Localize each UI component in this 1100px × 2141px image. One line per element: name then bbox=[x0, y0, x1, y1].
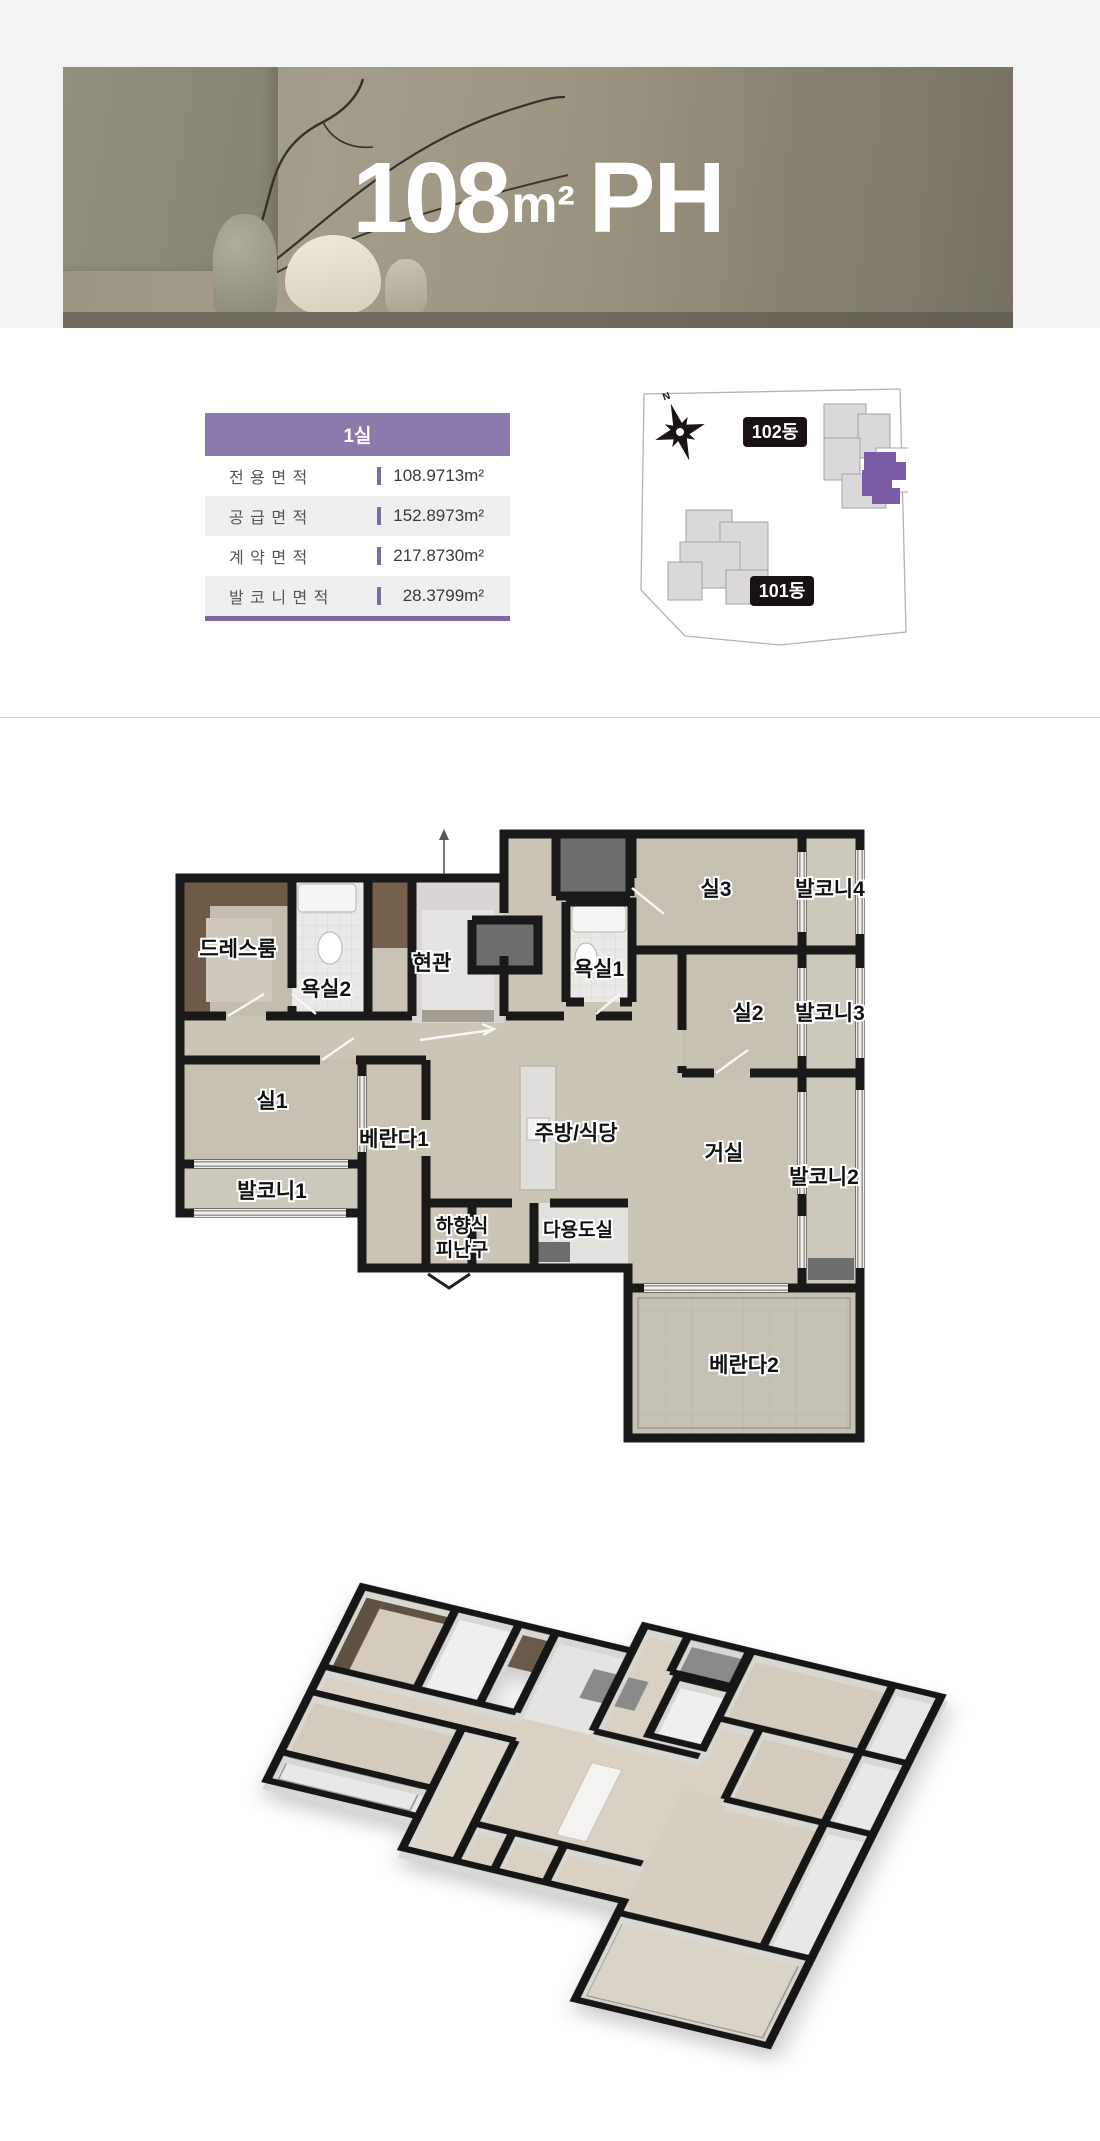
svg-text:102동: 102동 bbox=[752, 422, 799, 442]
hero-banner: 108 m² PH bbox=[63, 67, 1013, 328]
label-balcony2: 발코니2 bbox=[789, 1166, 859, 1189]
escape-hatch-mark bbox=[428, 1274, 470, 1288]
table-row-exclusive-area: 전 용 면 적 108.9713m² bbox=[205, 456, 510, 496]
area-type-suffix: PH bbox=[589, 148, 724, 248]
building-102-label: 102동 bbox=[743, 417, 807, 447]
row-value: 28.3799m² bbox=[389, 586, 510, 606]
table-header: 1실 bbox=[205, 413, 510, 456]
unit-108-ph-page: 108 m² PH 1실 전 용 면 적 108.9713m² 공 급 면 적 … bbox=[0, 0, 1100, 2141]
label-utility: 다용도실 bbox=[543, 1219, 613, 1241]
svg-text:101동: 101동 bbox=[759, 581, 806, 601]
label-escape-2: 피난구 bbox=[436, 1239, 488, 1261]
row-label: 계 약 면 적 bbox=[205, 544, 375, 568]
row-label: 공 급 면 적 bbox=[205, 504, 375, 528]
label-dressroom: 드레스룸 bbox=[199, 938, 276, 961]
purple-separator bbox=[377, 467, 381, 485]
section-divider bbox=[0, 717, 1100, 718]
building-101-label: 101동 bbox=[750, 576, 814, 606]
label-veranda1: 베란다1 bbox=[359, 1128, 429, 1151]
floor-fills bbox=[180, 834, 860, 1438]
table-row-supply-area: 공 급 면 적 152.8973m² bbox=[205, 496, 510, 536]
area-info-table: 1실 전 용 면 적 108.9713m² 공 급 면 적 152.8973m²… bbox=[205, 413, 510, 621]
label-balcony1: 발코니1 bbox=[237, 1180, 307, 1203]
row-value: 152.8973m² bbox=[389, 506, 510, 526]
purple-separator bbox=[377, 547, 381, 565]
row-label: 전 용 면 적 bbox=[205, 464, 375, 488]
label-escape-1: 하향식 bbox=[436, 1215, 488, 1237]
page-title: 108 m² PH bbox=[63, 67, 1013, 328]
label-balcony3: 발코니3 bbox=[795, 1002, 865, 1025]
purple-separator bbox=[377, 587, 381, 605]
table-row-balcony-area: 발 코 니 면 적 28.3799m² bbox=[205, 576, 510, 616]
table-row-contract-area: 계 약 면 적 217.8730m² bbox=[205, 536, 510, 576]
label-bath1: 욕실1 bbox=[574, 958, 625, 981]
row-label: 발 코 니 면 적 bbox=[205, 584, 375, 608]
floor-plan-2d: 드레스룸 욕실2 현관 욕실1 실3 발코니4 실2 발코니3 실1 베란다1 … bbox=[172, 818, 872, 1443]
area-number: 108 bbox=[352, 148, 507, 248]
label-room2: 실2 bbox=[733, 1002, 764, 1025]
label-balcony4: 발코니4 bbox=[795, 878, 865, 901]
row-value: 217.8730m² bbox=[389, 546, 510, 566]
label-veranda2: 베란다2 bbox=[709, 1354, 779, 1377]
label-entrance: 현관 bbox=[413, 952, 452, 975]
floor-plan-3d bbox=[225, 1488, 925, 2113]
purple-separator bbox=[377, 507, 381, 525]
site-location-map: N 102동 101동 bbox=[628, 386, 908, 656]
label-kitchen: 주방/식당 bbox=[534, 1122, 617, 1145]
label-living: 거실 bbox=[705, 1142, 744, 1165]
label-bath2: 욕실2 bbox=[301, 978, 351, 1001]
row-value: 108.9713m² bbox=[389, 466, 510, 486]
entrance-arrow bbox=[439, 829, 449, 874]
area-unit: m² bbox=[511, 179, 575, 231]
label-room1: 실1 bbox=[257, 1090, 288, 1113]
label-room3: 실3 bbox=[701, 878, 732, 901]
